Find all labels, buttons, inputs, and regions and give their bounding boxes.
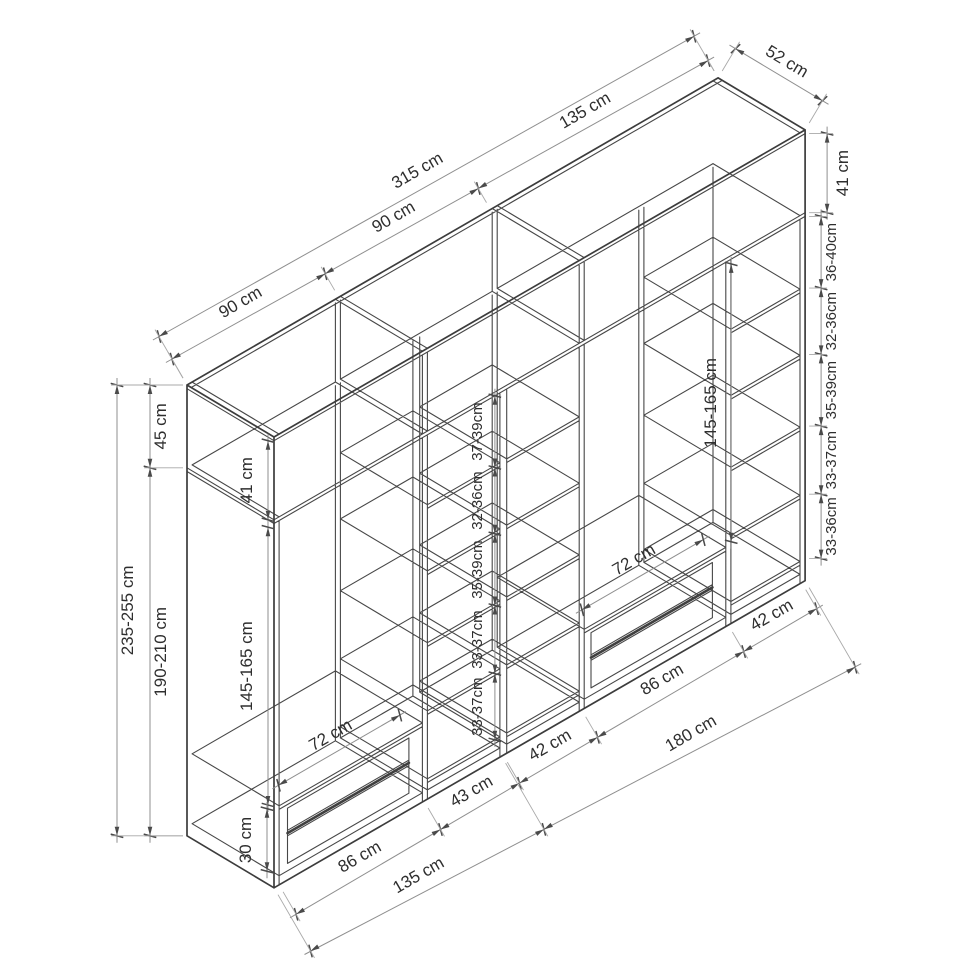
- diagram-stage: 90 cm90 cm135 cm315 cm86 cm43 cm42 cm86 …: [0, 0, 960, 960]
- dim-top-bays-label: 135 cm: [556, 88, 614, 132]
- dim-bottom-interiors-label: 86 cm: [637, 659, 687, 699]
- dim-right-gaps-label: 33-36cm: [823, 497, 840, 555]
- dim-bottom-modules-label: 180 cm: [662, 711, 720, 755]
- dim-middle-gaps-label: 37-39cm: [469, 402, 486, 460]
- wardrobe-dimension-diagram: 90 cm90 cm135 cm315 cm86 cm43 cm42 cm86 …: [0, 0, 960, 960]
- dim-left-split-label: 190-210 cm: [151, 607, 170, 697]
- dim-right-hanging-label: 145-165 cm: [701, 358, 720, 448]
- dim-depth-label: 52 cm: [762, 41, 811, 81]
- dim-drawer-right-label: 72 cm: [609, 540, 659, 580]
- dim-left-upper-interior-label: 41 cm: [237, 457, 256, 503]
- dim-bottom-modules-label: 135 cm: [390, 853, 448, 897]
- page: { "canvas": {"width": 960, "height": 960…: [0, 0, 960, 960]
- dim-middle-gaps-label: 32-36cm: [469, 471, 486, 529]
- dim-right-upper-label: 41 cm: [833, 150, 852, 196]
- dim-top-total-label: 315 cm: [388, 148, 446, 192]
- dim-bottom-interiors-label: 43 cm: [446, 771, 496, 811]
- dim-top-bays-label: 90 cm: [216, 282, 266, 322]
- dim-left-drawerzone-label: 30 cm: [236, 817, 255, 863]
- dim-middle-gaps-label: 33-37cm: [469, 610, 486, 668]
- dim-left-hanging-label: 145-165 cm: [237, 621, 256, 711]
- dim-drawer-left-label: 72 cm: [306, 715, 356, 755]
- wardrobe-structure: [187, 78, 805, 888]
- dim-bottom-interiors-label: 42 cm: [525, 725, 575, 765]
- dim-bottom-interiors-label: 86 cm: [335, 837, 385, 877]
- dim-middle-gaps-label: 33-37cm: [469, 678, 486, 736]
- dim-right-gaps-label: 33-37cm: [823, 431, 840, 489]
- dim-right-gaps-label: 35-39cm: [823, 361, 840, 419]
- dim-middle-gaps-label: 35-39cm: [469, 540, 486, 598]
- dim-right-gaps-label: 32-36cm: [823, 292, 840, 350]
- dim-right-gaps-label: 36-40cm: [823, 223, 840, 281]
- dim-left-total-label: 235-255 cm: [118, 566, 137, 656]
- dim-top-bays-label: 90 cm: [369, 197, 419, 237]
- dim-left-split-label: 45 cm: [151, 403, 170, 449]
